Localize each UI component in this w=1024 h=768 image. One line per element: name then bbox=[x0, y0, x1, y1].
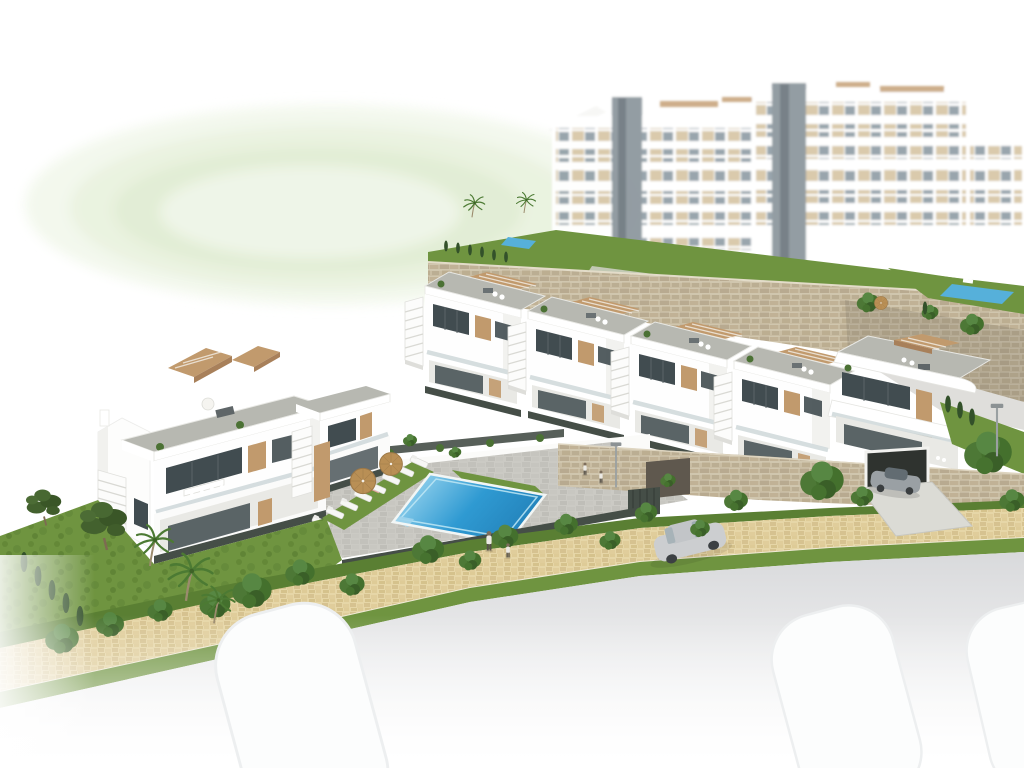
cypress-tree bbox=[504, 252, 508, 263]
cypress-tree bbox=[969, 409, 975, 426]
apartment-buildings bbox=[548, 76, 1024, 264]
cypress-tree bbox=[456, 243, 460, 254]
roof-pergola bbox=[660, 101, 718, 107]
straw-parasol bbox=[380, 453, 403, 476]
elevator-tower bbox=[612, 94, 642, 254]
render-stage: Architectural visualization: multi-store… bbox=[0, 0, 1024, 768]
cypress-tree bbox=[444, 241, 448, 252]
straw-parasol bbox=[350, 468, 375, 493]
straw-parasol bbox=[874, 296, 887, 309]
roof-parasol bbox=[202, 398, 214, 410]
cypress-tree bbox=[468, 245, 472, 256]
stair-wood-wall bbox=[314, 441, 330, 502]
cypress-tree bbox=[945, 396, 951, 413]
architectural-render bbox=[0, 0, 1024, 768]
cypress-tree bbox=[480, 247, 484, 258]
chimney bbox=[100, 410, 109, 426]
cypress-tree bbox=[923, 302, 927, 315]
left-fade bbox=[0, 555, 95, 768]
cypress-tree bbox=[492, 250, 496, 261]
cypress-tree bbox=[957, 402, 963, 419]
